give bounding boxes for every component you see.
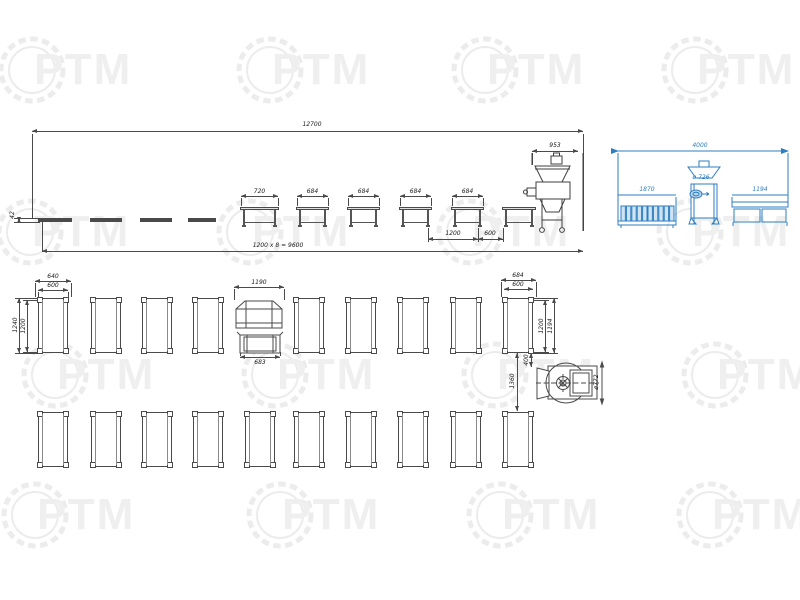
extension-line xyxy=(71,283,72,297)
table-foot xyxy=(374,225,378,227)
plan-table xyxy=(451,412,481,467)
table-shelf xyxy=(243,222,274,223)
extension-line xyxy=(452,198,453,206)
extension-line xyxy=(534,353,558,354)
dim-detail-machine-diameter: ø 726 xyxy=(692,175,709,181)
table-shelf xyxy=(402,222,427,223)
extension-line xyxy=(278,198,279,206)
table-leg xyxy=(324,210,326,225)
folded-table-side xyxy=(90,218,122,222)
extension-line xyxy=(536,282,537,297)
plan-table xyxy=(398,298,428,353)
dim-overall-length: 12700 xyxy=(302,122,321,128)
table-shelf xyxy=(350,222,375,223)
dimension-line xyxy=(545,300,546,352)
table-foot xyxy=(478,225,482,227)
plan-table xyxy=(294,298,324,353)
dimension-arrow xyxy=(504,287,509,291)
table-foot xyxy=(298,225,302,227)
extension-line xyxy=(32,134,33,218)
table-foot xyxy=(273,225,277,227)
table-foot xyxy=(349,225,353,227)
plan-table xyxy=(193,298,223,353)
dim-plan-conveyor-width: 1190 xyxy=(251,280,266,286)
extension-line xyxy=(23,300,37,301)
plan-table xyxy=(38,412,68,467)
plan-table xyxy=(91,298,121,353)
dim-machine-width: 953 xyxy=(549,143,560,149)
folded-table-side xyxy=(38,218,72,222)
dim-elevation-table-width: 720 xyxy=(254,189,265,195)
dim-elevation-table-width: 684 xyxy=(358,189,369,195)
table-shelf xyxy=(454,222,479,223)
dimension-arrow xyxy=(515,406,519,411)
extension-line xyxy=(15,353,37,354)
extension-line xyxy=(14,222,40,223)
table-foot xyxy=(530,225,534,227)
dimension-line xyxy=(32,131,583,132)
plan-table xyxy=(142,412,172,467)
plan-table xyxy=(503,298,533,353)
dimension-arrow xyxy=(515,353,519,358)
dim-plan-right-outer-width: 684 xyxy=(512,273,523,279)
table-leg xyxy=(427,210,429,225)
dim-plan-right-depth: 1200 xyxy=(539,318,545,333)
dim-spacing: 1200 xyxy=(445,231,460,237)
plan-table xyxy=(346,412,376,467)
dimension-arrow xyxy=(32,129,37,133)
dim-plan-left-inner-depth: 1200 xyxy=(21,318,27,333)
table-foot xyxy=(242,225,246,227)
dimension-line xyxy=(27,300,28,352)
table-shelf xyxy=(505,222,531,223)
extension-line xyxy=(379,198,380,206)
dim-plan-left-outer-width: 640 xyxy=(47,274,58,280)
dim-elevation-table-width: 684 xyxy=(307,189,318,195)
table-leg xyxy=(375,210,377,225)
dimension-arrow xyxy=(578,249,583,253)
extension-line xyxy=(483,198,484,206)
dim-plan-machine-diameter: ø772 xyxy=(594,374,600,389)
table-shelf xyxy=(299,222,324,223)
extension-line xyxy=(503,228,504,242)
dimension-line xyxy=(428,239,478,240)
dim-plan-left-inner-width: 600 xyxy=(47,283,58,289)
plan-table xyxy=(451,298,481,353)
dim-detail-left-table: 1870 xyxy=(639,187,654,193)
dim-elevation-table-width: 684 xyxy=(410,189,421,195)
plan-table xyxy=(398,412,428,467)
dim-elevation-table-width: 684 xyxy=(462,189,473,195)
extension-line xyxy=(534,298,558,299)
plan-table xyxy=(193,412,223,467)
extension-line xyxy=(501,282,502,297)
extension-line xyxy=(428,228,429,242)
table-foot xyxy=(401,225,405,227)
extension-line xyxy=(14,218,40,219)
extension-line xyxy=(431,198,432,206)
drawing-canvas: РТМРТМРТМРТМРТМРТМРТМРТМРТМРТМРТМРТМРТМР… xyxy=(0,0,800,600)
dimension-line xyxy=(517,353,518,411)
table-foot xyxy=(504,225,508,227)
dim-plan-conveyor-lower-width: 683 xyxy=(254,360,265,366)
table-leg xyxy=(479,210,481,225)
conveyor-plan-view xyxy=(228,292,290,362)
extension-line xyxy=(478,228,479,242)
table-foot xyxy=(323,225,327,227)
plan-table xyxy=(91,412,121,467)
dimension-arrow xyxy=(528,287,533,291)
extension-line xyxy=(297,198,298,206)
extension-line xyxy=(534,300,549,301)
folded-table-side xyxy=(188,218,216,222)
extension-line xyxy=(534,352,549,353)
extension-line xyxy=(348,198,349,206)
plan-table xyxy=(245,412,275,467)
table-leg xyxy=(531,210,533,225)
dimension-line xyxy=(234,287,284,288)
table-foot xyxy=(453,225,457,227)
dim-detail-right-table: 1194 xyxy=(752,187,767,193)
plan-table xyxy=(294,412,324,467)
dim-end-spacing: 600 xyxy=(484,231,495,237)
extension-line xyxy=(42,222,43,251)
table-foot xyxy=(426,225,430,227)
dimension-line xyxy=(554,298,555,353)
plan-table xyxy=(38,298,68,353)
extension-line xyxy=(23,352,37,353)
drawing-layer: 12700 42 1200 600 1200 x 8 = 9600 953 40… xyxy=(0,0,800,600)
dim-detail-overall: 4000 xyxy=(692,143,707,149)
extension-line xyxy=(241,198,242,206)
table-leg xyxy=(274,210,276,225)
extension-line xyxy=(400,198,401,206)
dim-plan-machine-offset: 400 xyxy=(524,354,530,365)
extension-line xyxy=(328,198,329,206)
dim-chain-note: 1200 x 8 = 9600 xyxy=(253,243,304,249)
dim-plan-right-inner-depth: 1194 xyxy=(548,318,554,333)
dim-plan-right-inner-width: 600 xyxy=(512,282,523,288)
dim-plan-row-gap: 1360 xyxy=(510,373,516,388)
folded-table-side xyxy=(140,218,172,222)
extension-line xyxy=(35,283,36,297)
dim-plan-left-outer-depth: 1240 xyxy=(13,317,19,332)
plan-table xyxy=(346,298,376,353)
extension-line xyxy=(15,298,37,299)
plan-table xyxy=(503,412,533,467)
dimension-line xyxy=(42,251,583,252)
plan-table xyxy=(142,298,172,353)
dimension-arrow xyxy=(578,129,583,133)
dim-table-height: 42 xyxy=(10,211,16,219)
